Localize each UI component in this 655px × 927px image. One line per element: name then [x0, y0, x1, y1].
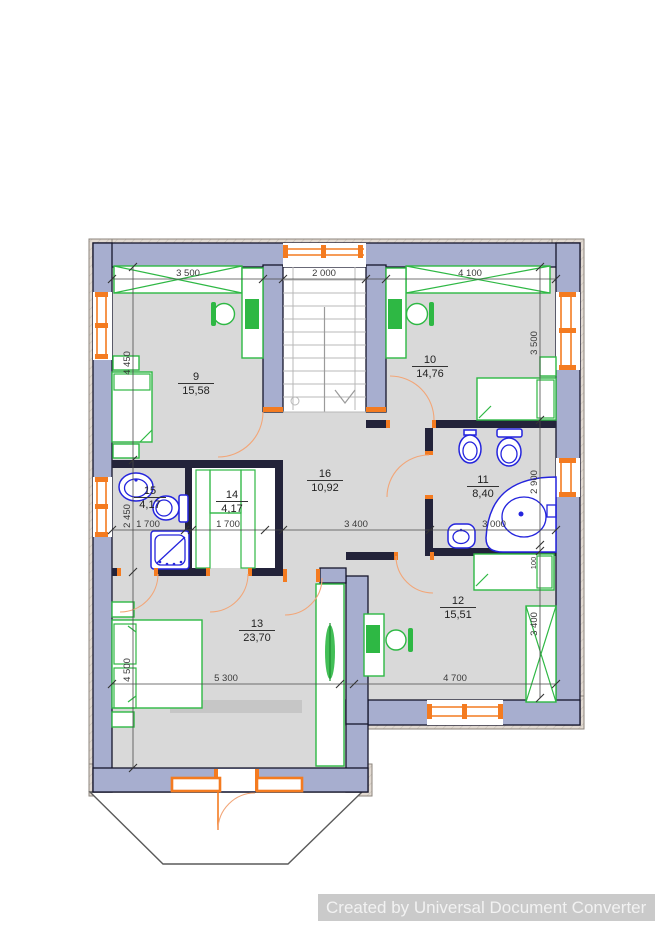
room9-area: 15,58 [182, 385, 210, 397]
dim-top-room9: 3 500 [176, 268, 200, 279]
floor-plan-drawing: 3 500 2 000 4 100 1 700 1 700 3 400 3 00… [0, 0, 655, 927]
room14-number: 14 [226, 489, 238, 501]
dim-mid-room14: 1 700 [216, 519, 240, 530]
dim-right-room12: 3 400 [529, 612, 540, 636]
window-room11-right [556, 458, 580, 497]
wall-stairwell-right [366, 265, 386, 412]
room13-area: 23,70 [243, 632, 271, 644]
window-room15-left [93, 477, 112, 537]
window-bay-left [172, 778, 220, 791]
room16-area: 10,92 [311, 482, 339, 494]
office-chair-room12 [386, 628, 413, 652]
terrace-bay [90, 792, 362, 864]
dim-mid-hall: 3 400 [344, 519, 368, 530]
window-room10-right [556, 292, 580, 370]
nightstand-room13-top [112, 602, 134, 617]
window-room12-bottom [427, 700, 503, 725]
room10-number: 10 [424, 354, 436, 366]
dim-top-stairs: 2 000 [312, 268, 336, 279]
dim-right-room11: 2 900 [529, 470, 540, 494]
window-stairwell-top [283, 243, 366, 267]
dim-mid-room11: 3 000 [482, 519, 506, 530]
dim-mid-room15: 1 700 [136, 519, 160, 530]
monitor-room10 [388, 299, 402, 329]
room9-number: 9 [193, 371, 199, 383]
bed-room12 [474, 554, 554, 590]
room14-area: 4,17 [221, 503, 242, 515]
room15-area: 4,17 [139, 499, 160, 511]
room14-floor [192, 468, 275, 568]
watermark-text: Created by Universal Document Converter [326, 898, 647, 917]
dim-right-wall: 100 [529, 557, 538, 570]
room10-area: 14,76 [416, 368, 444, 380]
desk-room12 [364, 614, 384, 676]
toilet-room11 [497, 429, 522, 466]
room11-number: 11 [477, 474, 488, 486]
dim-left-room9: 4 450 [122, 351, 133, 375]
sink-room11 [448, 524, 475, 548]
dim-bottom-room12: 4 700 [443, 673, 467, 684]
watermark: Created by Universal Document Converter [318, 894, 655, 921]
nightstand-room13-bottom [112, 712, 134, 727]
office-chair-room10 [407, 302, 435, 326]
shower-room15 [151, 531, 189, 569]
dim-right-room10: 3 500 [529, 331, 540, 355]
dim-bottom-room13: 5 300 [214, 673, 238, 684]
dim-left-room13: 4 500 [122, 658, 133, 682]
monitor-room9 [245, 299, 259, 329]
nightstand-room10 [540, 357, 556, 376]
window-bay-right [257, 778, 302, 791]
wall-stairwell-left [263, 265, 283, 412]
dim-left-room15: 2 450 [122, 504, 133, 528]
office-chair-room9 [211, 302, 235, 326]
room11-area: 8,40 [472, 488, 493, 500]
room12-number: 12 [452, 595, 464, 607]
floor-plan-page: 3 500 2 000 4 100 1 700 1 700 3 400 3 00… [0, 0, 655, 927]
dim-top-room10: 4 100 [458, 268, 482, 279]
window-room9-left [93, 292, 112, 360]
monitor-room12 [366, 625, 380, 653]
nightstand-room9 [113, 444, 139, 458]
room15-number: 15 [144, 485, 156, 497]
room16-number: 16 [319, 468, 331, 480]
room13-number: 13 [251, 618, 263, 630]
desk-room10 [386, 268, 406, 358]
room12-area: 15,51 [444, 609, 472, 621]
wall-hall-room13 [320, 568, 346, 583]
